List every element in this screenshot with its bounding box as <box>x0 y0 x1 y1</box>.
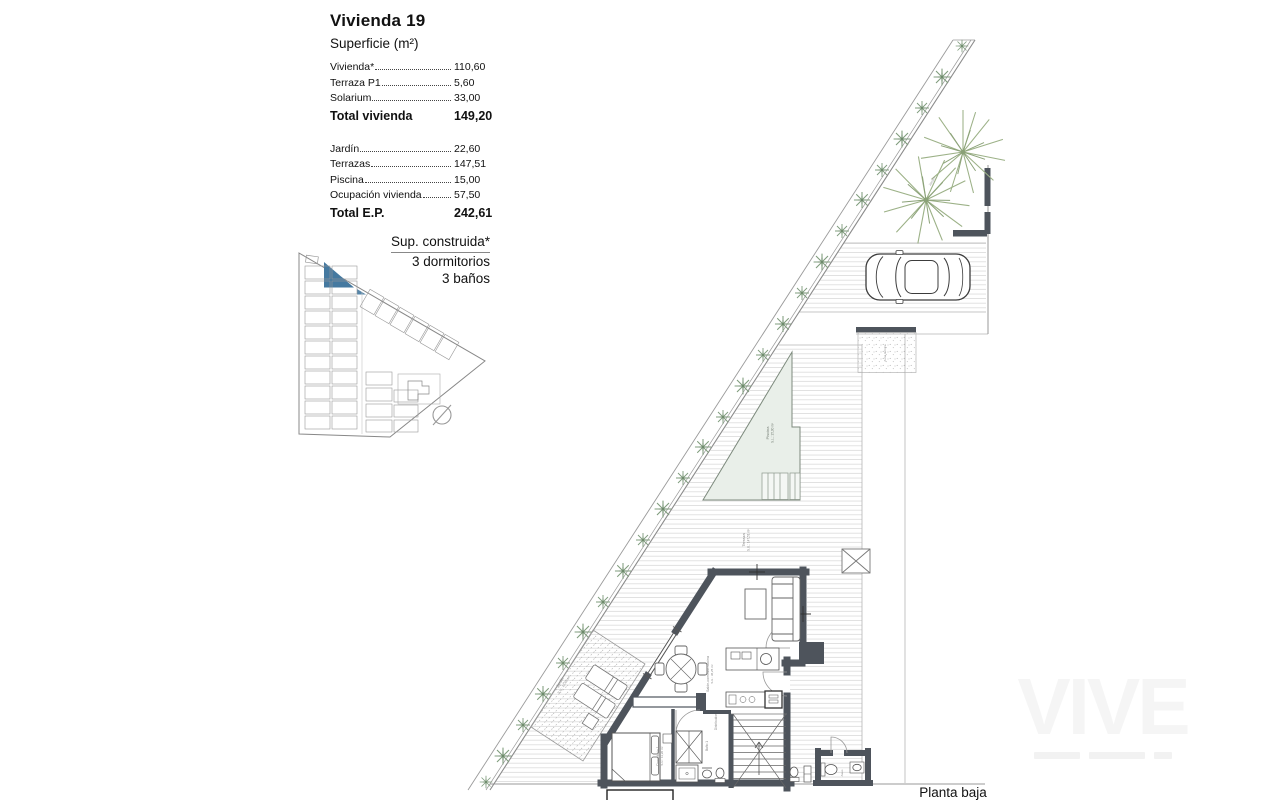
pool-steps <box>762 473 800 500</box>
coffee-table <box>745 589 766 619</box>
surface-row: Ocupación vivienda 57,50 <box>330 189 490 205</box>
surface-row: Vivienda* 110,60 <box>330 61 490 77</box>
bedroom-label: Dormitorio 1 S.U.: 11,20 m² <box>656 746 664 766</box>
nightstand <box>663 734 672 743</box>
svg-text:S.U.: 11,20 m²: S.U.: 11,20 m² <box>660 746 664 765</box>
floorplan-sheet: VIVE Vivienda 19 Superficie (m²) Viviend… <box>0 0 1280 800</box>
palm-tree-icon <box>868 142 984 258</box>
surface-total-row: Total vivienda 149,20 <box>330 109 490 128</box>
surface-row: Terrazas 147,51 <box>330 158 490 174</box>
svg-text:Distribuidor: Distribuidor <box>714 713 718 730</box>
compass-icon <box>433 405 451 425</box>
washbasin <box>703 770 712 778</box>
oven <box>765 691 782 708</box>
svg-text:Baño 1: Baño 1 <box>705 741 709 751</box>
outdoor-equipment-box <box>842 549 870 573</box>
hall-label: Distribuidor <box>714 713 718 730</box>
sink <box>731 652 740 659</box>
technical-zone: Zona técnica <box>858 333 916 373</box>
washbasin <box>853 764 861 770</box>
svg-text:S.U.: 147,51 m²: S.U.: 147,51 m² <box>747 529 751 551</box>
technical-zone-label: Zona técnica <box>883 344 887 362</box>
surface-row: Piscina 15,00 <box>330 174 490 190</box>
built-surface-note: Sup. construida* 3 dormitorios 3 baños <box>330 233 490 288</box>
toilet-icon <box>716 768 724 778</box>
surface-row: Terraza P1 5,60 <box>330 77 490 93</box>
wardrobe <box>676 731 702 763</box>
svg-text:Terraza: Terraza <box>741 533 746 547</box>
scale-bar <box>607 790 673 800</box>
page-title: Vivienda 19 <box>330 11 490 31</box>
chair <box>655 663 664 675</box>
car <box>866 251 970 304</box>
surface-panel: Vivienda 19 Superficie (m²) Vivienda* 11… <box>330 11 490 225</box>
site-clubhouse <box>398 374 440 404</box>
floor-label: Planta baja <box>898 785 1008 800</box>
surface-row: Solarium 33,00 <box>330 92 490 108</box>
surface-total-row: Total E.P. 242,61 <box>330 206 490 225</box>
swimming-pool: Piscina S.L.: 15,00 m² <box>703 352 800 500</box>
main-floor-plan: Zona técnica Piscina S.L.: 15,00 m² Te <box>0 0 1280 800</box>
built-title: Sup. construida* <box>391 233 490 253</box>
wall-pillar <box>799 642 824 664</box>
surface-subtitle: Superficie (m²) <box>330 36 490 51</box>
bathrooms-line: 3 baños <box>330 270 490 288</box>
site-houses-diagonal <box>360 289 459 359</box>
sofa <box>772 577 800 641</box>
svg-text:S.U.: 38,25 m²: S.U.: 38,25 m² <box>710 664 714 683</box>
hob <box>761 654 772 665</box>
bath-label: Baño 1 <box>705 741 709 751</box>
toilet-icon <box>825 765 837 775</box>
toilet-icon <box>790 767 798 777</box>
bedrooms-line: 3 dormitorios <box>330 253 490 271</box>
site-houses-left <box>305 266 357 429</box>
pool-label: Piscina <box>765 426 770 440</box>
surface-row: Jardín 22,60 <box>330 143 490 159</box>
aseo-label: Aseo <box>840 769 844 776</box>
pool-area-label: S.L.: 15,00 m² <box>771 423 775 443</box>
